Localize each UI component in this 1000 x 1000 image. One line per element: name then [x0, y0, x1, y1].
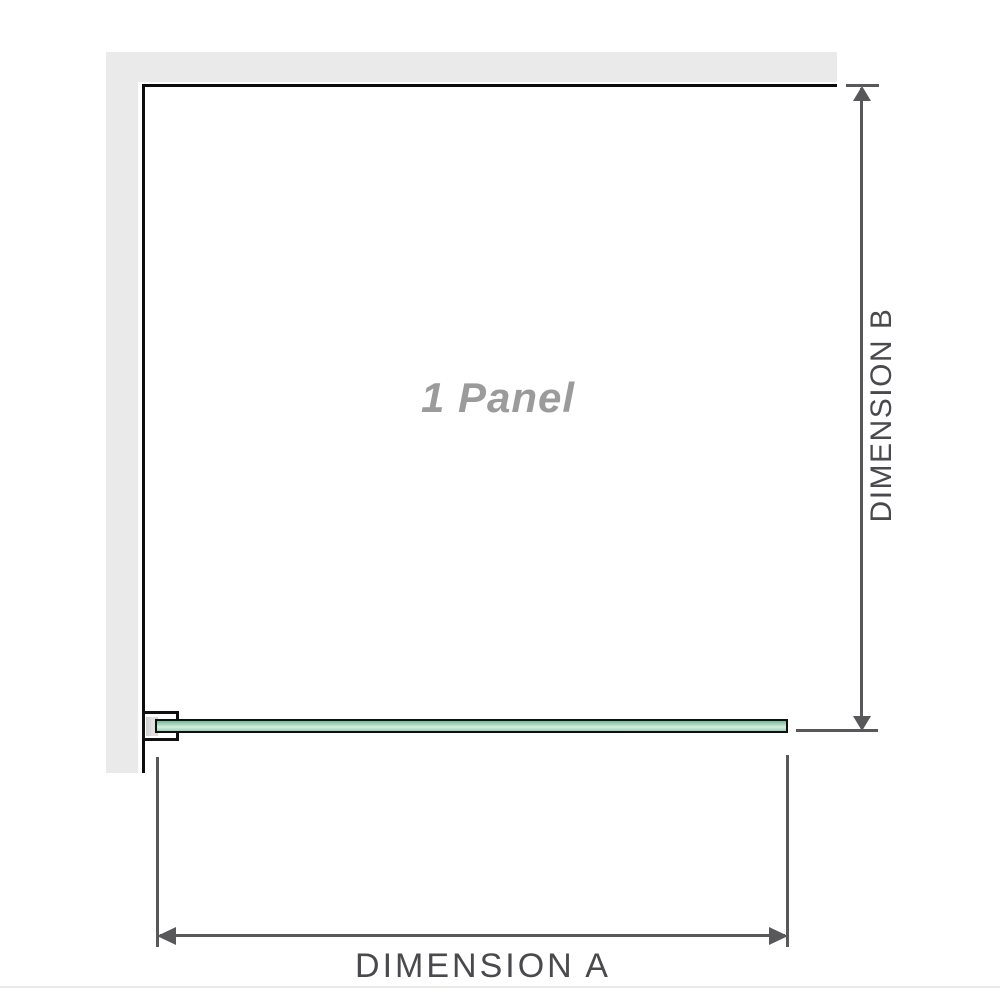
dimension-a-extension-line-left	[156, 757, 159, 947]
dimension-a-extension-line-right	[786, 755, 789, 947]
glass-panel	[155, 719, 788, 733]
wall-top	[106, 52, 837, 82]
wall-left	[106, 52, 138, 773]
arrow-left-icon	[157, 927, 176, 945]
dimension-a-line	[160, 934, 785, 937]
bottom-divider	[0, 986, 1000, 988]
dimension-b-label: DIMENSION B	[867, 265, 897, 565]
dimension-b-line	[860, 88, 863, 718]
dimension-a-label: DIMENSION A	[333, 947, 633, 986]
panel-outline	[142, 84, 837, 773]
arrow-down-icon	[853, 716, 871, 731]
arrow-right-icon	[769, 927, 788, 945]
arrow-up-icon	[853, 86, 871, 101]
panel-count-label: 1 Panel	[348, 370, 648, 426]
